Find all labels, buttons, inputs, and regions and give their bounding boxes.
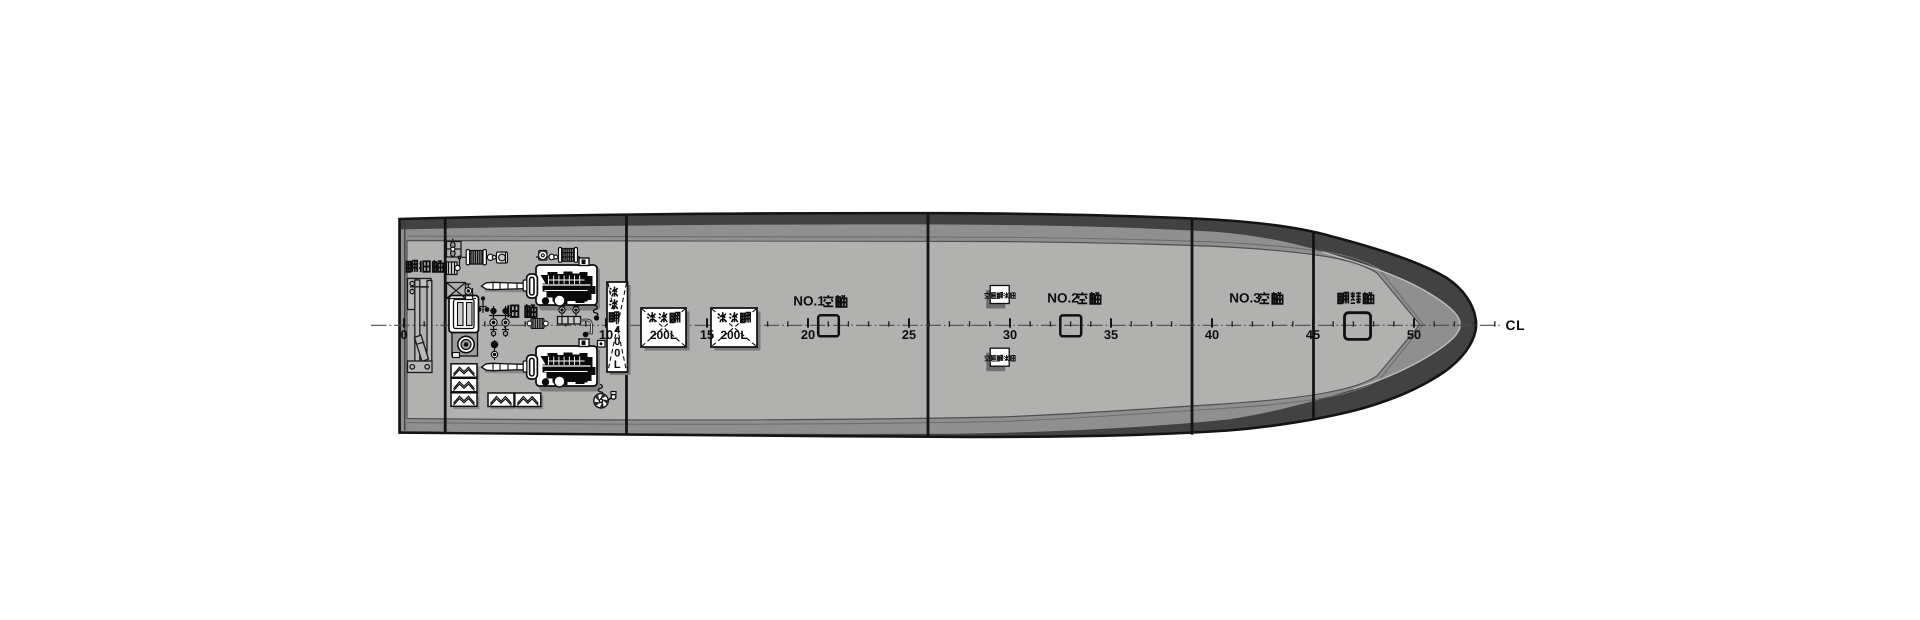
svg-text:NO.2: NO.2 xyxy=(1047,291,1079,306)
svg-text:NO.1: NO.1 xyxy=(793,294,825,309)
svg-text:15: 15 xyxy=(700,327,714,342)
svg-text:0: 0 xyxy=(614,348,620,360)
svg-text:200L: 200L xyxy=(720,328,747,342)
svg-text:25: 25 xyxy=(902,327,916,342)
svg-text:NO.3: NO.3 xyxy=(1229,291,1261,306)
svg-text:200L: 200L xyxy=(650,328,677,342)
svg-text:10: 10 xyxy=(599,327,613,342)
svg-text:40: 40 xyxy=(1205,327,1219,342)
svg-text:35: 35 xyxy=(1104,327,1118,342)
svg-text:L: L xyxy=(614,359,621,371)
svg-text:30: 30 xyxy=(1003,327,1017,342)
svg-text:50: 50 xyxy=(1407,327,1421,342)
svg-text:CL: CL xyxy=(1506,318,1526,333)
svg-text:0: 0 xyxy=(614,336,620,348)
svg-text:0: 0 xyxy=(400,327,407,342)
svg-text:4: 4 xyxy=(614,325,621,337)
svg-text:20: 20 xyxy=(801,327,815,342)
svg-text:45: 45 xyxy=(1306,327,1320,342)
